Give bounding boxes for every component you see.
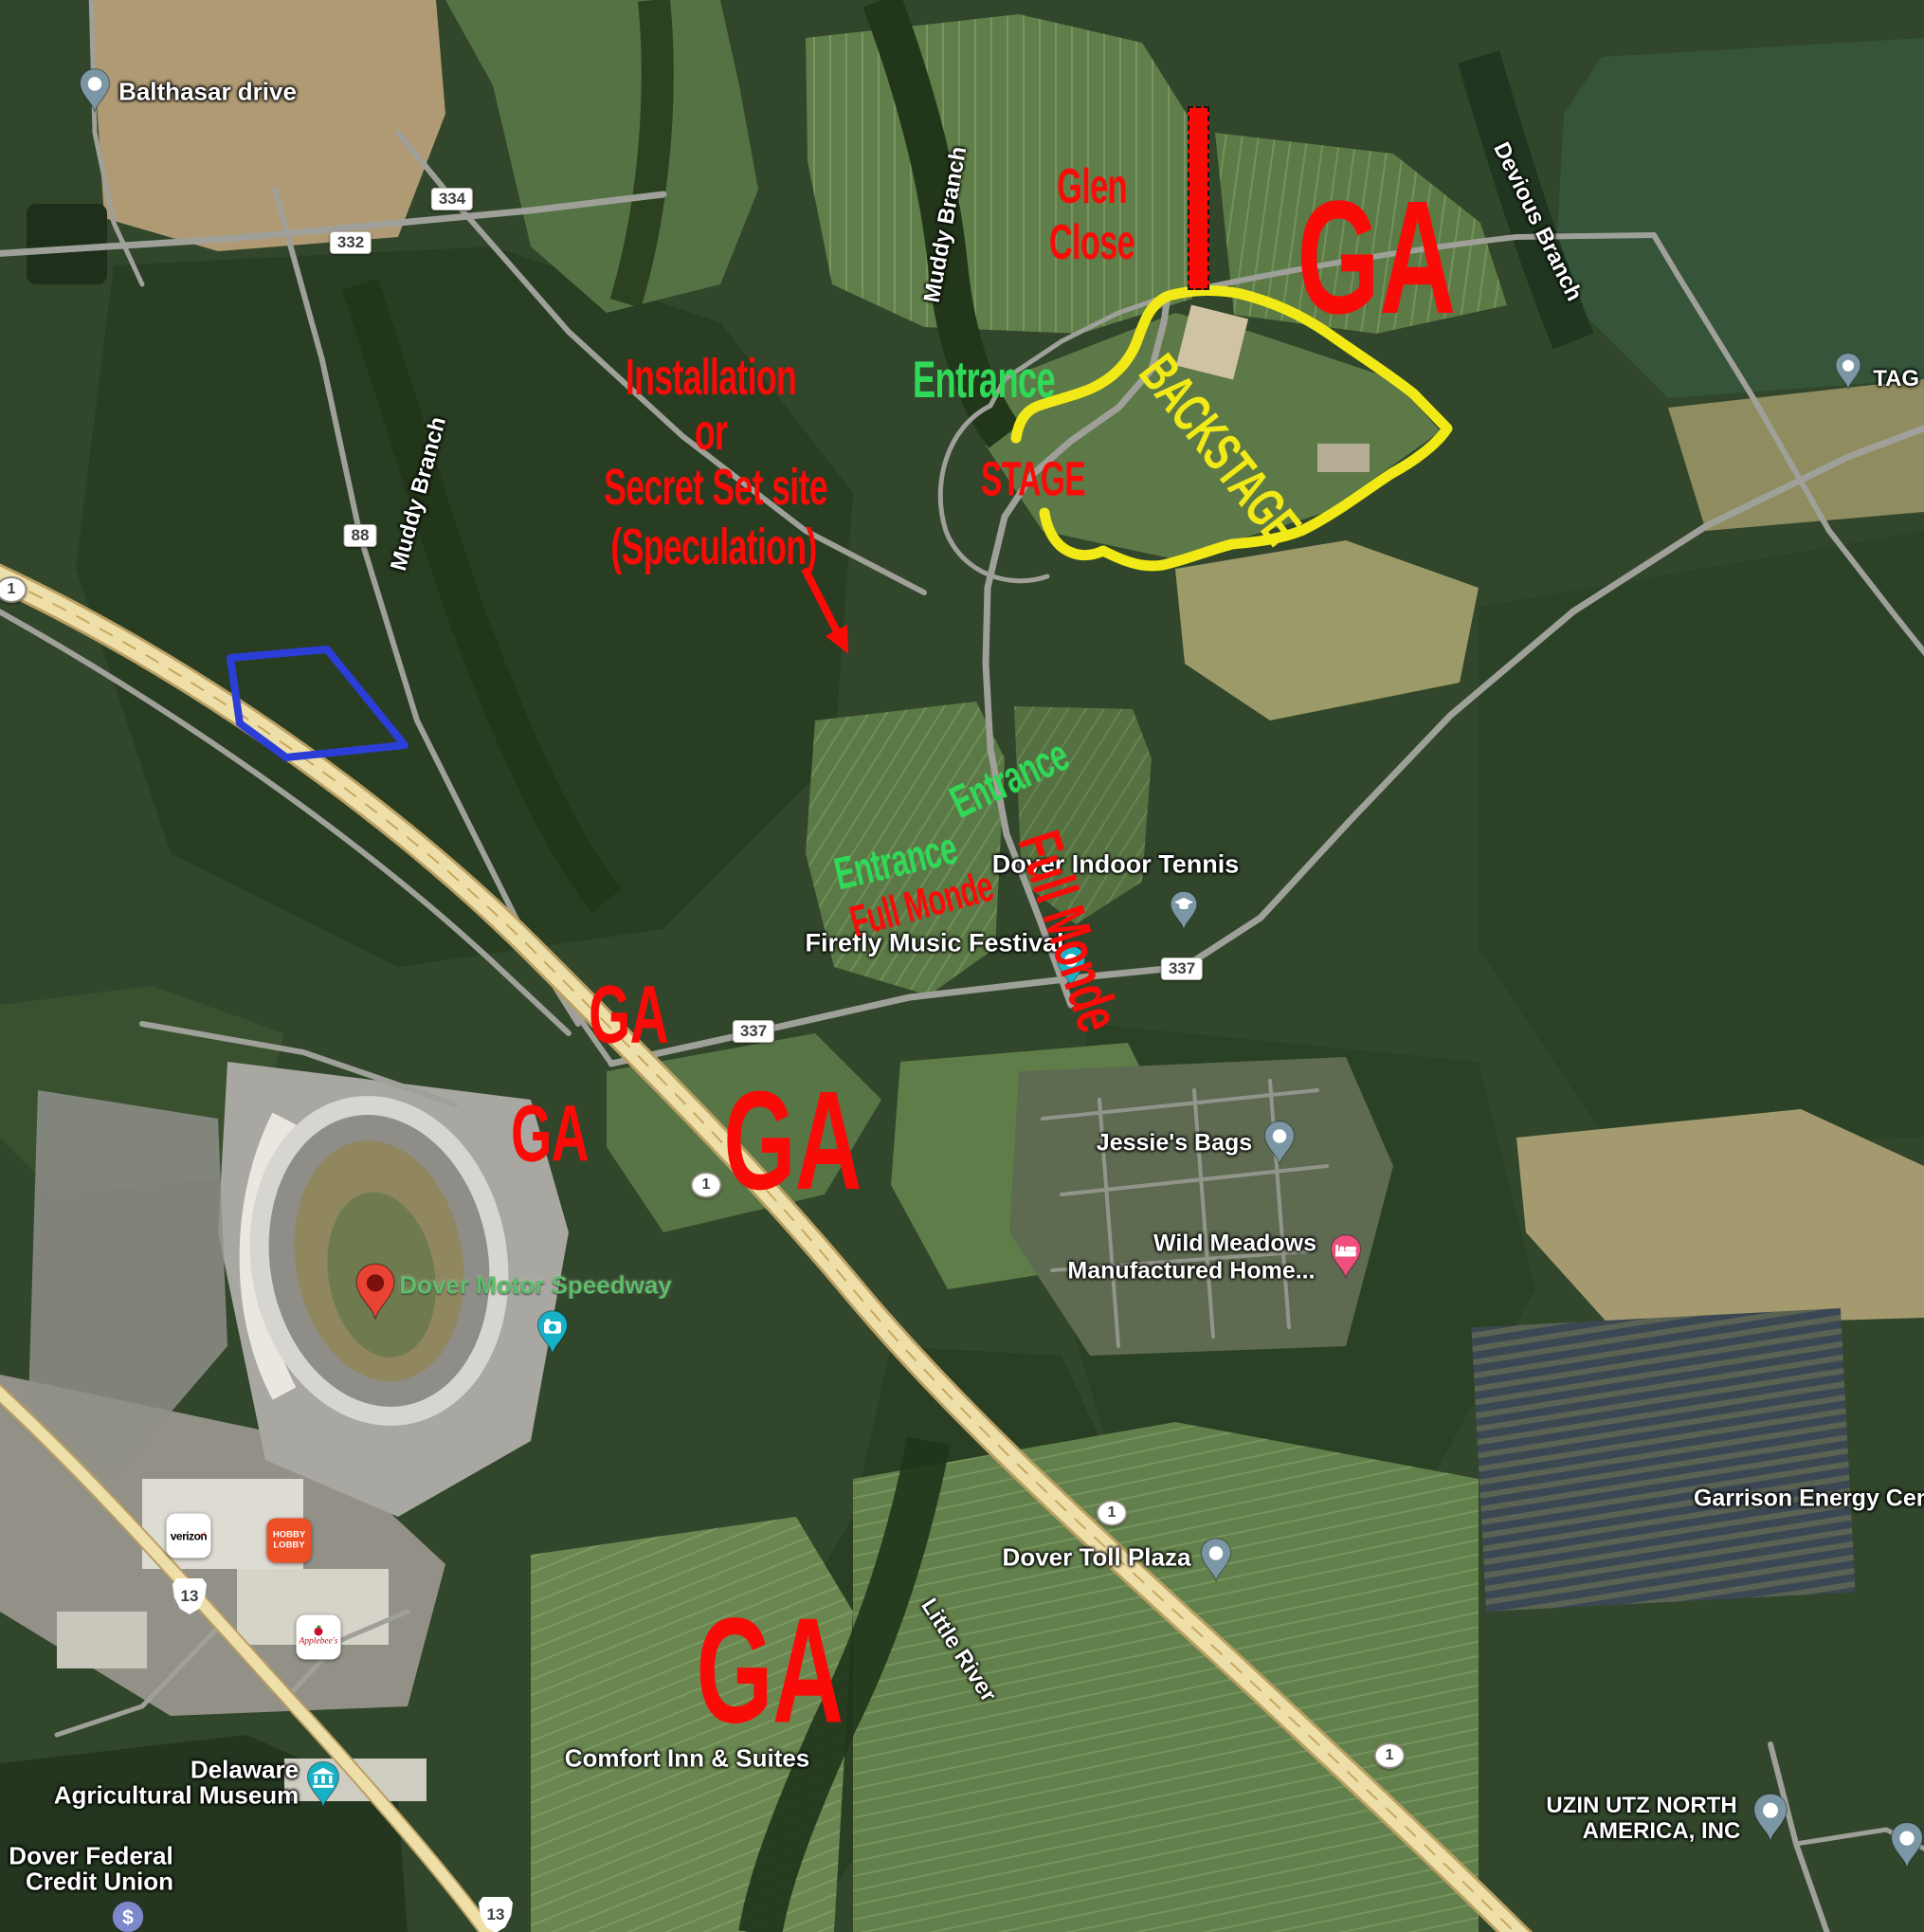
annotation-installation-line1: Installation (626, 348, 796, 407)
satellite-map[interactable]: Balthasar driveMuddy BranchMuddy BranchD… (0, 0, 1924, 1932)
annotation-glen-close-line1: Glen (1057, 158, 1127, 215)
annotation-ga-north: GA (1298, 165, 1456, 351)
annotation-stage: STAGE (981, 451, 1085, 507)
blue-area-outline (230, 649, 405, 757)
annotation-drawing-layer (0, 0, 1924, 1932)
annotation-glen-close-line2: Close (1049, 214, 1134, 271)
annotation-installation-line4: (Speculation) (610, 518, 816, 576)
annotation-ga-lot-west: GA (511, 1088, 589, 1180)
annotation-ga-lot-center: GA (723, 1061, 861, 1222)
annotation-entrance-north: Entrance (913, 349, 1055, 410)
speculation-arrow (805, 569, 840, 637)
annotation-installation-line3: Secret Set site (604, 458, 827, 517)
annotation-installation-line2: or (695, 403, 727, 462)
annotation-ga-lot-south: GA (696, 1586, 843, 1758)
glen-close-bar (1188, 106, 1209, 290)
annotation-ga-lot-north: GA (589, 969, 668, 1063)
